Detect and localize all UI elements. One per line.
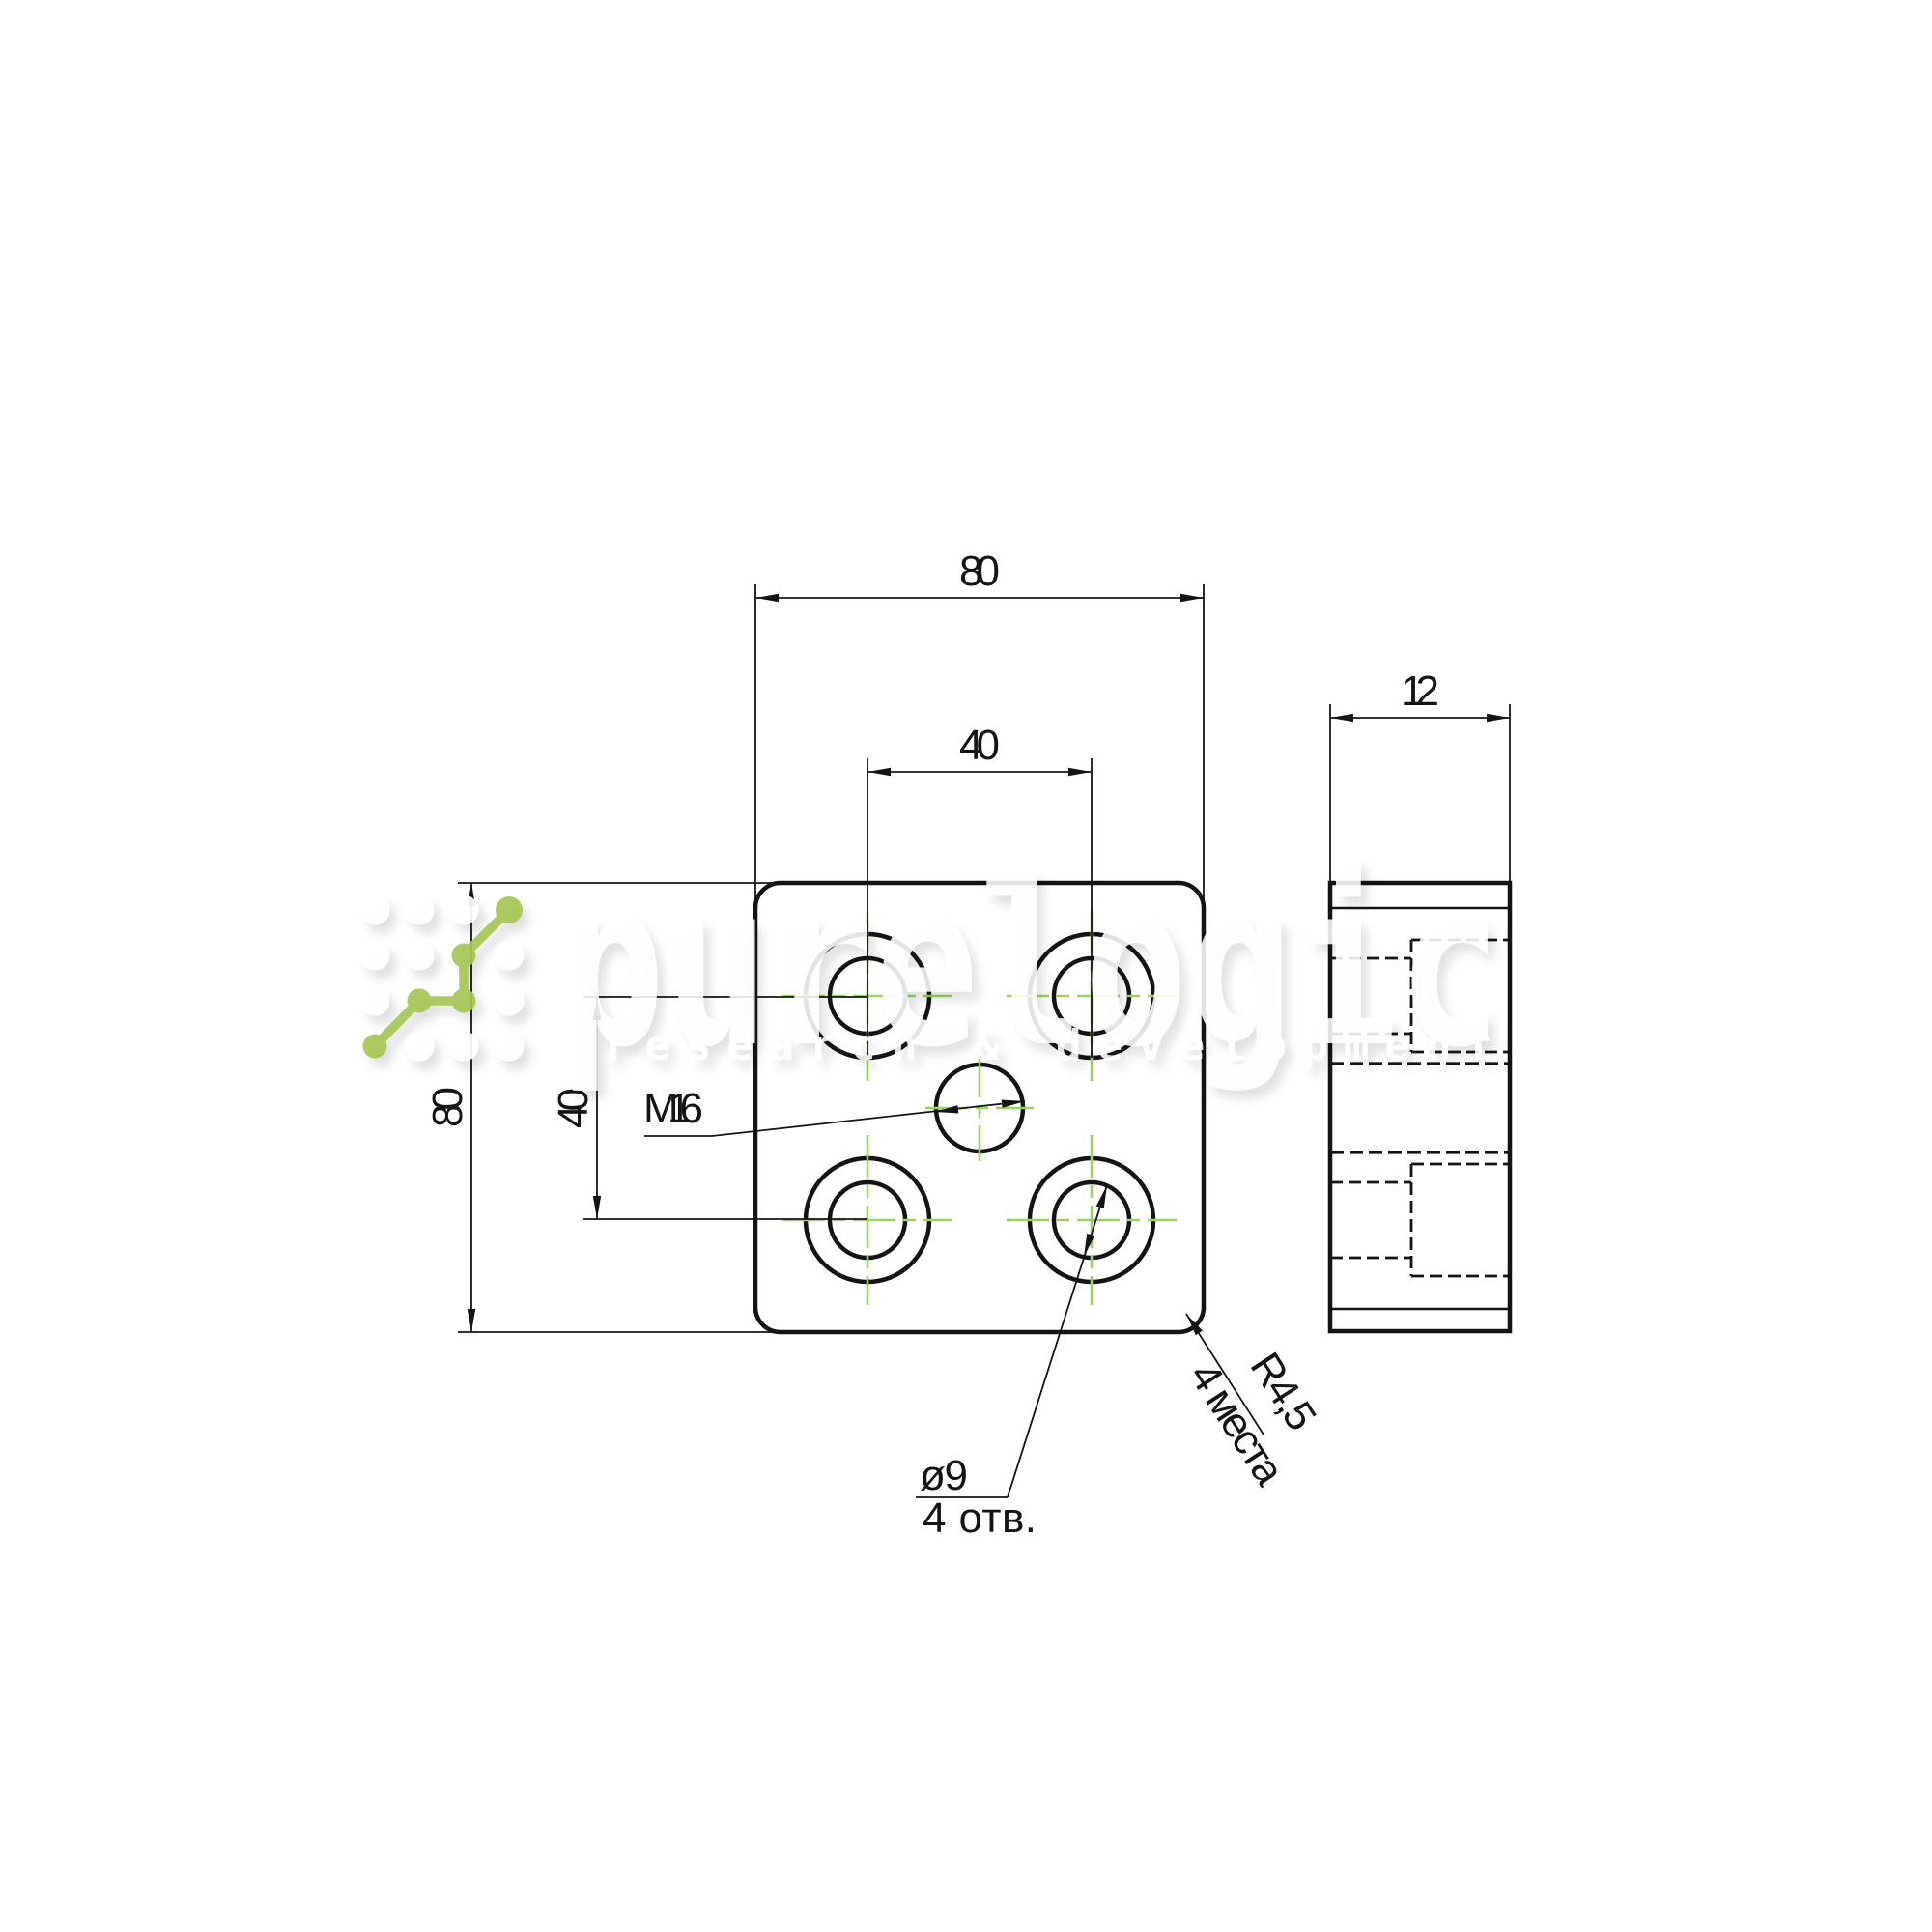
callout-dia9: ø9 4 отв.: [916, 1184, 1111, 1542]
dim-hole-spacing-x-text: 40: [959, 722, 1000, 769]
callout-dia9-text: ø9: [920, 1452, 968, 1499]
callout-dia9-count-text: 4 отв.: [923, 1494, 1037, 1542]
drawing-canvas: 80 40 80 40: [0, 0, 1932, 1932]
watermark-layer: purelogic research & development: [360, 834, 1503, 1097]
logo-green-path: [363, 896, 524, 1059]
technical-drawing-page: 80 40 80 40: [0, 0, 1932, 1932]
side-view-hidden-lower-hole: [1330, 1164, 1510, 1276]
logo-green-lines: [375, 910, 509, 1046]
dim-thickness-12-text: 12: [1401, 668, 1439, 715]
dim-height-80-text: 80: [424, 1087, 471, 1127]
dim-width-80-text: 80: [959, 548, 1000, 595]
callout-r45: R4,5 4 места: [1180, 1312, 1325, 1494]
